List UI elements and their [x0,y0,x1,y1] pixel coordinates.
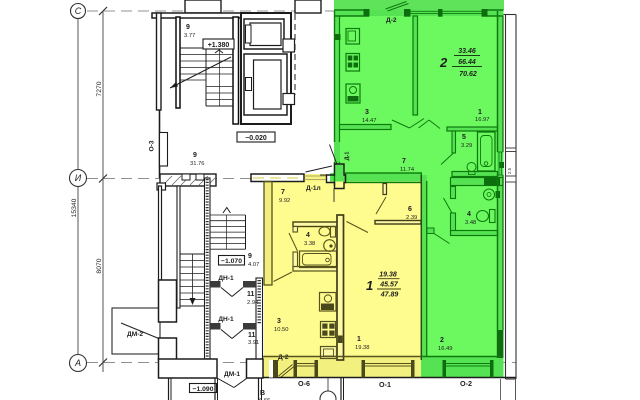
svg-text:10.50: 10.50 [274,327,289,333]
svg-text:11: 11 [247,291,255,298]
svg-text:1: 1 [366,278,373,293]
svg-text:11: 11 [248,332,256,339]
svg-text:Д-2: Д-2 [386,17,397,24]
svg-text:2.39: 2.39 [406,215,417,221]
svg-text:О-1: О-1 [379,380,391,389]
svg-text:2.94: 2.94 [247,300,259,306]
svg-text:ДН-1: ДН-1 [218,316,234,323]
svg-text:Д-1л: Д-1л [306,185,321,192]
svg-text:ДН-1: ДН-1 [218,275,234,282]
svg-text:О-2: О-2 [460,379,472,388]
svg-text:В: В [260,390,265,397]
svg-text:19.38: 19.38 [355,345,370,351]
svg-text:70.62: 70.62 [459,71,477,78]
svg-text:5: 5 [462,134,466,141]
svg-text:7: 7 [281,189,285,196]
svg-text:8070: 8070 [96,258,103,273]
svg-text:А: А [74,358,81,368]
svg-text:1: 1 [357,336,361,343]
svg-text:7: 7 [402,158,406,165]
svg-text:3.91: 3.91 [248,340,259,346]
svg-text:9: 9 [248,253,252,260]
svg-text:С: С [75,6,82,16]
svg-text:ДМ-1: ДМ-1 [224,371,240,378]
svg-text:3: 3 [277,318,281,325]
svg-text:47.89: 47.89 [380,292,399,299]
svg-text:11.74: 11.74 [400,167,415,173]
svg-text:+1.380: +1.380 [208,42,230,49]
svg-text:3.77: 3.77 [184,33,195,39]
svg-text:9.92: 9.92 [279,198,290,204]
svg-text:И: И [75,173,82,183]
svg-text:9: 9 [186,24,190,31]
svg-text:ДМ-2: ДМ-2 [127,331,143,338]
svg-text:3.48: 3.48 [465,220,476,226]
svg-text:19.38: 19.38 [379,272,397,279]
svg-text:4: 4 [306,232,310,239]
svg-text:16.49: 16.49 [438,346,453,352]
svg-text:31.76: 31.76 [190,161,205,167]
svg-text:2: 2 [440,337,444,344]
svg-text:−1.090: −1.090 [193,386,214,393]
svg-text:Д-2: Д-2 [278,354,289,361]
svg-text:2: 2 [439,55,448,70]
svg-text:9: 9 [193,152,197,159]
svg-text:1: 1 [478,109,482,116]
svg-text:33.46: 33.46 [458,48,476,55]
svg-text:3.29: 3.29 [461,143,472,149]
svg-text:4.07: 4.07 [248,262,259,268]
svg-text:Д-1: Д-1 [345,152,351,161]
svg-text:15340: 15340 [71,198,78,217]
svg-text:66.44: 66.44 [458,59,476,66]
svg-text:−0.020: −0.020 [245,135,267,142]
svg-text:О-3: О-3 [149,140,156,151]
svg-text:2.5: 2.5 [507,167,512,174]
svg-text:4: 4 [467,211,471,218]
svg-text:16.97: 16.97 [475,117,490,123]
svg-text:7270: 7270 [96,81,103,96]
svg-text:О-6: О-6 [298,379,310,388]
svg-text:14.47: 14.47 [362,118,377,124]
svg-text:3.38: 3.38 [304,241,315,247]
svg-text:6: 6 [408,206,412,213]
svg-text:45.57: 45.57 [379,282,399,289]
svg-text:−1.070: −1.070 [221,258,242,265]
svg-text:3: 3 [365,109,369,116]
